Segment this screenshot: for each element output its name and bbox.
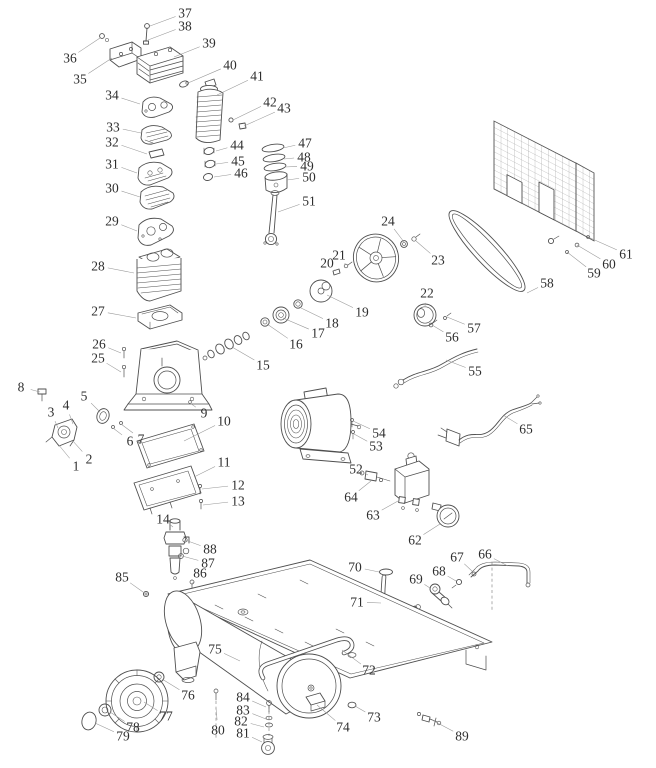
part-bolt-57: [444, 313, 452, 320]
part-base-plate-11: [134, 466, 201, 514]
part-bolt-42: [229, 118, 233, 122]
leader-line-42: [233, 106, 261, 120]
part-fittings-86-87-88: [179, 537, 194, 590]
part-nut-23: [412, 234, 420, 241]
part-number-39: 39: [202, 36, 216, 51]
leader-line-13: [203, 502, 228, 505]
part-number-21: 21: [332, 248, 346, 263]
leader-line-34: [122, 98, 140, 104]
part-number-6: 6: [127, 434, 134, 449]
leader-line-45: [216, 162, 228, 164]
leader-line-44: [216, 148, 227, 151]
leader-line-67: [464, 564, 473, 572]
part-number-85: 85: [115, 570, 129, 585]
part-bolts-25-26: [122, 347, 125, 377]
leader-line-89: [432, 720, 453, 731]
part-number-68: 68: [432, 564, 446, 579]
part-number-41: 41: [250, 69, 264, 84]
part-number-71: 71: [350, 595, 364, 610]
part-number-75: 75: [208, 642, 222, 657]
part-number-3: 3: [48, 405, 55, 420]
part-number-35: 35: [73, 72, 87, 87]
part-crankcase: [124, 341, 212, 410]
leader-line-70: [365, 569, 379, 572]
part-gasket-10: [137, 424, 204, 468]
leader-line-7: [121, 424, 133, 433]
leader-line-33: [123, 129, 141, 133]
part-discharge-tube-66-67-68: [452, 562, 530, 588]
part-regulator-14: [164, 519, 189, 580]
part-number-53: 53: [369, 439, 383, 454]
part-number-14: 14: [156, 512, 170, 527]
part-number-89: 89: [455, 729, 469, 744]
part-bolt-37-38: [144, 24, 150, 45]
leader-line-81: [252, 737, 262, 742]
leader-line-36: [78, 38, 100, 52]
part-number-17: 17: [311, 326, 325, 341]
part-oring-79: [80, 711, 98, 732]
part-number-40: 40: [223, 58, 237, 73]
part-bearing-17: [273, 307, 289, 323]
part-drain-valve-89: [417, 712, 440, 726]
part-number-28: 28: [91, 259, 105, 274]
part-valve-plate-31: [138, 162, 172, 185]
part-number-32: 32: [105, 135, 119, 150]
part-number-23: 23: [431, 253, 445, 268]
part-number-57: 57: [467, 321, 481, 336]
part-unloader-tube-55: [394, 349, 478, 388]
part-number-13: 13: [231, 494, 245, 509]
leader-line-57: [447, 317, 465, 324]
part-number-18: 18: [325, 316, 339, 331]
part-leg-bracket: [174, 642, 200, 683]
part-number-43: 43: [277, 101, 291, 116]
part-number-51: 51: [302, 194, 316, 209]
part-connecting-rod-51: [264, 191, 279, 246]
part-plug-8: [38, 389, 46, 401]
part-seal-18: [294, 300, 302, 308]
part-clip-36: [100, 34, 109, 42]
leader-line-79: [95, 723, 114, 732]
leader-line-27: [108, 313, 136, 318]
part-crank-balancer-19: [310, 280, 332, 302]
part-number-60: 60: [602, 257, 616, 272]
part-motor: [281, 388, 361, 463]
part-number-76: 76: [181, 688, 195, 703]
part-number-1: 1: [73, 459, 80, 474]
part-motor-pulley-22: [414, 304, 436, 326]
part-number-80: 80: [211, 723, 225, 738]
leader-line-73: [355, 706, 365, 712]
leader-line-48: [284, 158, 294, 159]
part-plug-73: [348, 702, 356, 708]
part-number-11: 11: [218, 455, 231, 470]
part-number-12: 12: [231, 478, 245, 493]
part-number-47: 47: [298, 136, 312, 151]
part-number-7: 7: [138, 432, 145, 447]
part-number-16: 16: [289, 337, 303, 352]
part-number-46: 46: [234, 166, 248, 181]
part-number-58: 58: [540, 276, 554, 291]
leader-line-88: [185, 540, 201, 546]
part-number-38: 38: [178, 19, 192, 34]
leader-line-68: [448, 576, 456, 581]
leader-line-28: [108, 268, 134, 273]
leader-line-43: [244, 112, 275, 126]
leader-line-32: [121, 145, 147, 154]
part-crankshaft-15: [203, 331, 251, 360]
leader-line-31: [121, 167, 137, 173]
part-number-66: 66: [478, 547, 492, 562]
part-number-61: 61: [619, 247, 633, 262]
leader-line-41: [217, 80, 248, 95]
part-number-31: 31: [105, 157, 119, 172]
leader-line-29: [121, 225, 137, 231]
part-valve-plate-34: [142, 97, 173, 117]
leader-line-24: [394, 229, 404, 242]
leader-line-11: [194, 466, 215, 477]
part-number-83: 83: [236, 703, 250, 718]
part-number-56: 56: [445, 330, 459, 345]
part-number-9: 9: [201, 406, 208, 421]
part-fitting-40: [179, 80, 190, 88]
part-number-79: 79: [116, 729, 130, 744]
part-number-63: 63: [366, 508, 380, 523]
part-number-70: 70: [348, 560, 362, 575]
part-number-24: 24: [381, 214, 395, 229]
leader-line-54: [353, 421, 370, 429]
leader-line-84: [252, 701, 266, 707]
part-number-55: 55: [468, 364, 482, 379]
leader-line-53: [354, 434, 367, 441]
part-number-4: 4: [63, 398, 70, 413]
leader-line-40: [188, 69, 221, 83]
part-number-42: 42: [263, 95, 277, 110]
leader-line-15: [232, 347, 254, 360]
leader-line-1: [58, 444, 70, 458]
leader-line-51: [278, 204, 300, 212]
part-number-62: 62: [408, 533, 422, 548]
part-number-36: 36: [63, 51, 77, 66]
leader-line-23: [416, 241, 430, 253]
part-number-27: 27: [91, 304, 105, 319]
part-flywheel: [349, 230, 403, 286]
leader-line-26: [108, 348, 121, 353]
part-air-filter-41: [196, 79, 223, 143]
part-number-34: 34: [105, 88, 119, 103]
leader-line-5: [91, 403, 100, 412]
leader-line-25: [107, 363, 121, 372]
part-number-84: 84: [236, 690, 250, 705]
part-number-67: 67: [450, 550, 464, 565]
part-key-20: [333, 269, 340, 275]
part-number-72: 72: [362, 663, 376, 678]
leader-line-16: [267, 324, 288, 338]
leader-line-6: [113, 428, 122, 435]
part-number-2: 2: [86, 452, 93, 467]
leader-line-64: [359, 481, 371, 491]
part-number-73: 73: [367, 710, 381, 725]
leader-line-37: [150, 16, 176, 26]
part-bolt-21: [344, 262, 352, 268]
leader-line-47: [283, 145, 295, 148]
part-check-valve-69: [430, 584, 452, 608]
part-number-88: 88: [203, 542, 217, 557]
leader-line-56: [432, 325, 443, 332]
leader-line-82: [251, 724, 264, 727]
leader-line-58: [527, 287, 538, 293]
leader-line-30: [122, 191, 140, 197]
leader-line-87: [182, 556, 198, 560]
part-caster-stack-81-84: [262, 700, 275, 754]
part-fittings-44-45-46: [203, 146, 216, 181]
part-plate-32: [149, 149, 164, 158]
leader-line-38: [148, 30, 176, 40]
part-bits-6-7: [112, 422, 123, 429]
leader-line-46: [214, 174, 231, 177]
part-number-77: 77: [159, 709, 173, 724]
part-number-8: 8: [18, 380, 25, 395]
part-gasket-27: [138, 305, 182, 329]
leader-line-63: [382, 501, 398, 510]
leader-line-85: [130, 583, 143, 592]
leader-line-59: [567, 252, 586, 267]
part-number-30: 30: [105, 181, 119, 196]
part-v-belt-58: [441, 203, 533, 299]
part-breather-body-1-2-3-4: [46, 419, 77, 446]
leader-line-18: [299, 307, 323, 319]
part-number-65: 65: [519, 422, 533, 437]
part-number-5: 5: [81, 389, 88, 404]
leader-line-62: [423, 524, 440, 535]
leader-line-2: [72, 440, 82, 452]
parts-diagram-page: 1234567891011121314151617181920212223242…: [0, 0, 656, 768]
part-number-59: 59: [587, 266, 601, 281]
part-piston-rings-47-48-49: [262, 143, 287, 173]
part-nut-43: [239, 123, 246, 129]
part-valve-plate-33: [141, 126, 171, 145]
part-cylinder-block-28: [137, 249, 181, 301]
part-fasteners-59-60-61: [548, 236, 589, 254]
part-number-69: 69: [409, 572, 423, 587]
part-cylinder-head-39: [137, 47, 183, 83]
part-number-44: 44: [230, 138, 244, 153]
part-number-52: 52: [349, 462, 363, 477]
leader-line-60: [577, 245, 600, 259]
part-number-29: 29: [105, 214, 119, 229]
leader-line-17: [283, 318, 309, 329]
part-number-87: 87: [201, 556, 215, 571]
part-number-15: 15: [256, 358, 270, 373]
exploded-view-drawing: 1234567891011121314151617181920212223242…: [0, 0, 656, 768]
part-number-22: 22: [420, 286, 434, 301]
part-pressure-switch-63: [395, 453, 429, 512]
part-belt-guard-mesh: [494, 121, 594, 241]
leader-line-12: [202, 486, 228, 489]
leader-line-49: [285, 166, 297, 167]
part-valve-plate-30: [140, 186, 174, 209]
leader-line-65: [503, 415, 517, 424]
leader-line-83: [252, 714, 266, 719]
part-piston-50: [265, 171, 288, 193]
part-head-cover-35: [110, 42, 141, 67]
part-number-74: 74: [336, 720, 350, 735]
leader-line-35: [88, 58, 112, 74]
leader-line-50: [287, 178, 299, 180]
part-number-50: 50: [302, 170, 316, 185]
part-number-33: 33: [106, 120, 120, 135]
part-number-25: 25: [91, 351, 105, 366]
part-power-cord-65: [438, 395, 541, 446]
leader-line-69: [424, 584, 430, 588]
leader-line-61: [588, 237, 617, 250]
leader-line-14: [171, 525, 173, 527]
part-number-64: 64: [344, 490, 358, 505]
part-number-26: 26: [92, 337, 106, 352]
part-gasket-29: [138, 218, 173, 245]
part-number-10: 10: [217, 414, 231, 429]
leader-line-19: [327, 295, 353, 308]
leader-line-39: [174, 47, 200, 57]
part-fittings-52-64: [360, 471, 390, 482]
part-bolt-85: [143, 591, 148, 596]
part-number-54: 54: [372, 426, 386, 441]
part-gauge-62: [432, 503, 459, 527]
part-number-19: 19: [355, 305, 369, 320]
